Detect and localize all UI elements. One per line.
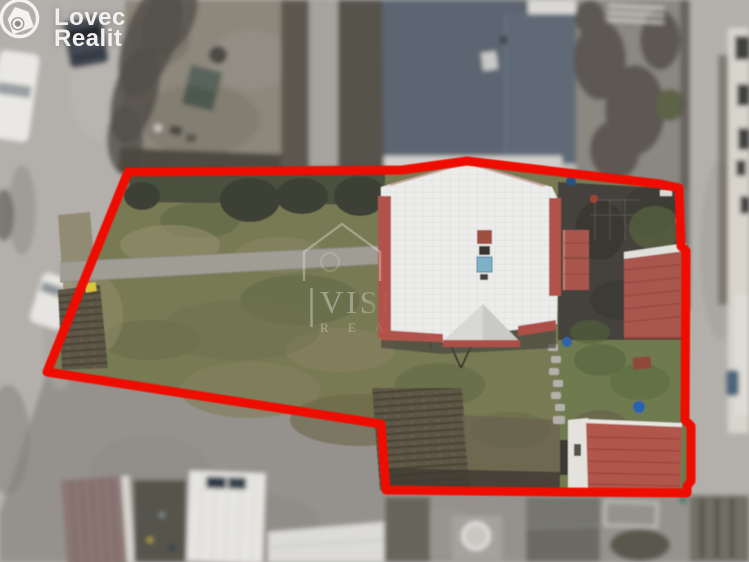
neighbor-strip bbox=[309, 0, 338, 168]
tree-canopy bbox=[209, 46, 227, 64]
tree-row bbox=[281, 0, 309, 170]
eave-right bbox=[549, 198, 561, 296]
blue-barrel bbox=[562, 337, 572, 347]
roof-vent bbox=[479, 246, 490, 255]
hedge-bottom-right bbox=[690, 495, 749, 562]
solar-panel bbox=[206, 476, 226, 489]
bush bbox=[629, 206, 681, 250]
roof-hatch bbox=[480, 274, 488, 280]
white-building bbox=[735, 295, 749, 415]
aerial-photo-listing: VISI R E A Lovec Realit bbox=[0, 0, 749, 562]
porch-eave bbox=[443, 340, 520, 347]
chimney bbox=[500, 36, 507, 44]
white-fence-bit bbox=[660, 190, 672, 196]
main-house-roof bbox=[378, 162, 561, 347]
pergola-roof bbox=[564, 230, 589, 290]
junk-strip bbox=[134, 480, 186, 562]
red-cover bbox=[590, 195, 598, 203]
shed-window bbox=[574, 444, 581, 456]
watermark-text-sub: R E A bbox=[320, 320, 392, 335]
dark-gable-roof bbox=[526, 497, 600, 562]
dark-car bbox=[62, 15, 110, 69]
blue-roof-building bbox=[382, 0, 576, 166]
chimney bbox=[477, 230, 492, 244]
garage-roof bbox=[624, 243, 686, 338]
aerial-photo: VISI R E A bbox=[0, 0, 749, 562]
parked-car-blue bbox=[726, 370, 739, 396]
watermark-text-main: VISI bbox=[320, 284, 394, 320]
red-shed bbox=[568, 418, 682, 492]
shrubs bbox=[610, 529, 670, 561]
roof-vent bbox=[481, 51, 498, 71]
solar-roof-building bbox=[186, 471, 265, 562]
planter bbox=[633, 356, 652, 370]
patio-table bbox=[452, 516, 502, 560]
solar-panel bbox=[228, 477, 246, 490]
hedge-block bbox=[385, 497, 430, 562]
blue-barrel bbox=[633, 401, 645, 413]
brown-roof-building bbox=[61, 476, 135, 562]
bush bbox=[656, 89, 684, 121]
tree-row bbox=[338, 0, 385, 168]
skylight bbox=[477, 257, 492, 272]
